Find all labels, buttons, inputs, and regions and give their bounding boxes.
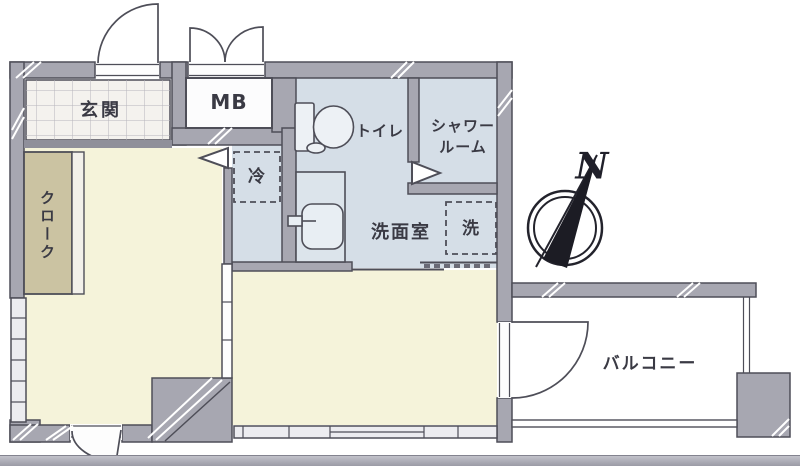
vanity-fixture bbox=[288, 172, 345, 262]
north-label: N bbox=[576, 145, 609, 188]
entrance-door-arc bbox=[98, 4, 158, 63]
room-partition bbox=[222, 264, 232, 378]
mb-door-left-arc bbox=[190, 28, 225, 62]
entrance-label: 玄関 bbox=[80, 100, 122, 122]
mb-door-right-arc bbox=[225, 27, 263, 62]
closet-label: クローク bbox=[38, 190, 56, 262]
bedroom-area bbox=[232, 270, 497, 425]
balcony-door-arc bbox=[512, 322, 588, 398]
shower-room-label-line1: シャワー bbox=[431, 117, 495, 135]
entrance-step bbox=[24, 140, 172, 148]
scan-edge-band bbox=[0, 455, 800, 466]
balcony-label: バルコニー bbox=[603, 354, 698, 374]
shower-room-label: シャワー ルーム bbox=[431, 116, 495, 158]
toilet-label: トイレ bbox=[356, 122, 404, 140]
meter-box-label: MB bbox=[210, 90, 247, 114]
balcony-edge bbox=[512, 420, 737, 427]
bottom-window bbox=[234, 426, 497, 438]
washroom-label: 洗面室 bbox=[371, 222, 431, 244]
left-window bbox=[11, 298, 26, 422]
washer-label: 洗 bbox=[462, 219, 480, 239]
corner-pillar bbox=[737, 373, 790, 437]
kitchen-strip-area bbox=[232, 145, 282, 265]
shower-room-label-line2: ルーム bbox=[439, 138, 487, 156]
refrigerator-label: 冷 bbox=[248, 167, 266, 187]
floor-plan: 玄関 MB トイレ シャワー ルーム 洗面室 洗 冷 クローク バルコニー N bbox=[0, 0, 800, 466]
